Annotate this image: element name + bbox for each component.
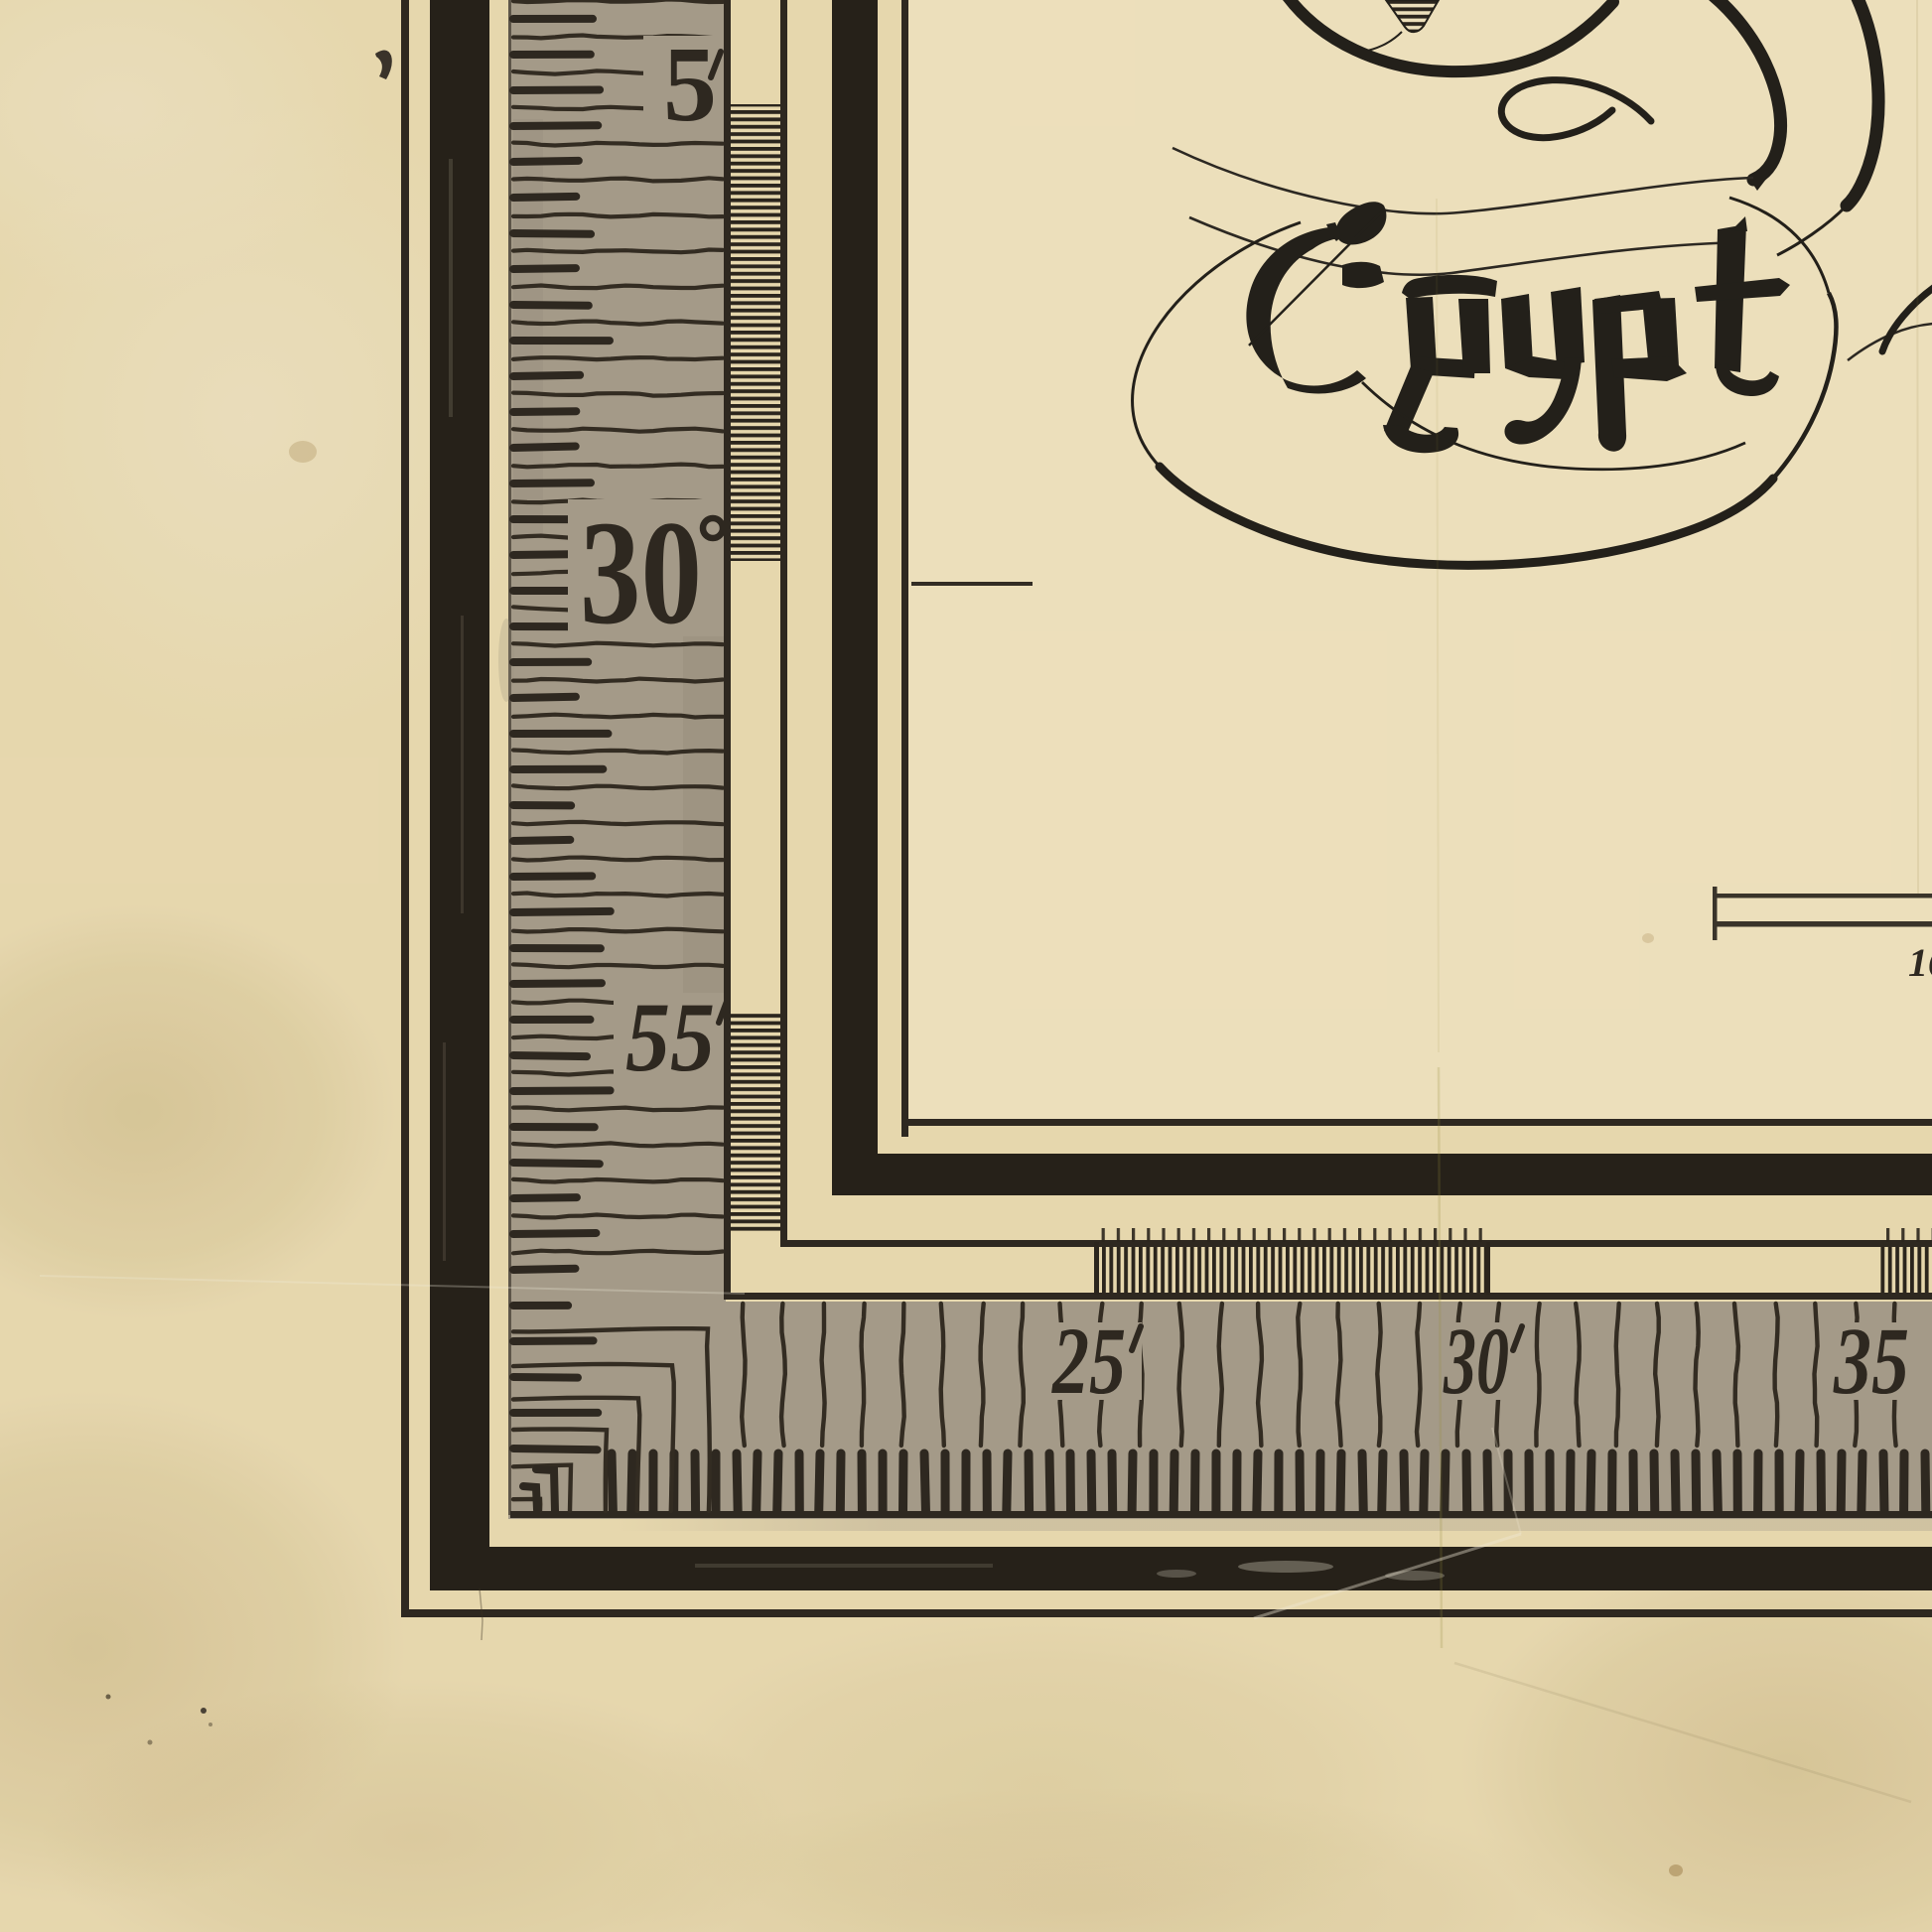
svg-text:16: 16	[1908, 940, 1932, 985]
svg-text:55: 55	[625, 982, 715, 1092]
svg-text:25: 25	[1050, 1308, 1126, 1414]
svg-text:5: 5	[663, 26, 717, 144]
svg-text:35: 35	[1833, 1308, 1909, 1414]
svg-text:30: 30	[580, 490, 702, 655]
svg-text:30: 30	[1443, 1308, 1509, 1414]
